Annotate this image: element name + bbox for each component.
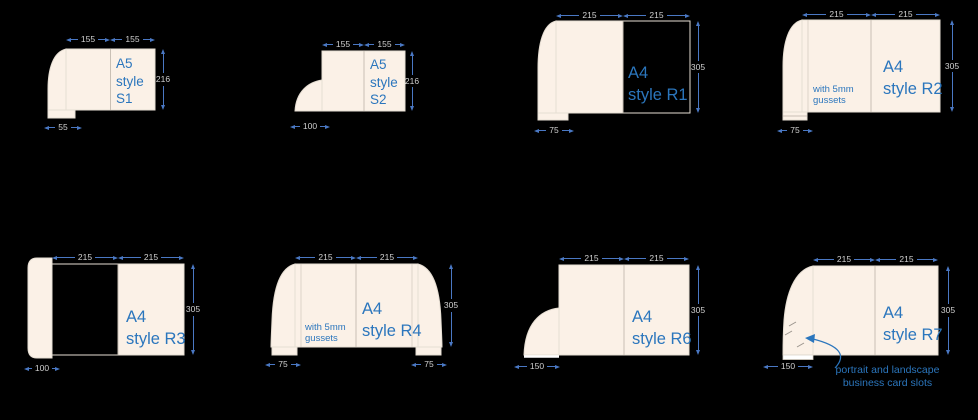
dim-value: 150: [778, 362, 798, 371]
dim-value: 215: [895, 10, 915, 19]
dim-value: 100: [32, 364, 52, 373]
dim-value: 305: [941, 304, 955, 317]
flap-left: [783, 20, 802, 112]
dim-line: [952, 72, 953, 107]
diagram-a5-s2: 155 155 216 100 A5styleS2: [288, 38, 463, 143]
dim-line: [143, 39, 150, 40]
dim-value: 75: [787, 126, 802, 135]
dim-r1-panel2-width: 215: [623, 11, 690, 20]
dim-r2-panel1-width: 215: [802, 10, 871, 19]
folder-label-r1: A4style R1: [628, 62, 688, 107]
dim-value: 305: [444, 299, 458, 312]
dim-line: [115, 39, 122, 40]
arrowhead-right-icon: [808, 365, 813, 369]
arrowhead-down-icon: [946, 350, 950, 355]
dim-line: [163, 54, 164, 73]
dim-r4-height: 305: [441, 264, 461, 347]
pocket-round: [524, 308, 559, 355]
dim-s1-panel2-width: 155: [110, 35, 155, 44]
dim-line: [952, 25, 953, 60]
dim-line: [807, 14, 826, 15]
dim-s2-panel2-width: 155: [364, 40, 405, 49]
dim-r3-spine-width: 100: [24, 364, 60, 373]
dim-value: 155: [333, 40, 353, 49]
diagram-a4-r4: 215 215 305 75 75 with 5mmgussets A4styl…: [263, 250, 468, 385]
dim-value: 216: [156, 73, 170, 86]
dim-value: 75: [546, 126, 561, 135]
dim-value: 305: [691, 304, 705, 317]
dim-line: [412, 87, 413, 106]
arrowhead-down-icon: [449, 342, 453, 347]
dim-value: 215: [896, 255, 916, 264]
dim-value: 215: [75, 253, 95, 262]
dim-line: [876, 14, 895, 15]
gusset-note-r4: with 5mmgussets: [305, 322, 346, 345]
dim-value: 215: [579, 11, 599, 20]
dim-line: [95, 257, 113, 258]
arrowhead-right-icon: [933, 258, 938, 262]
dim-line: [397, 257, 413, 258]
dim-r3-height: 305: [183, 264, 203, 355]
dim-line: [600, 15, 618, 16]
flap-left: [538, 21, 556, 113]
flap-foot-right: [416, 347, 441, 355]
dim-value: 305: [186, 303, 200, 316]
pocket-round: [295, 80, 322, 111]
dim-line: [193, 269, 194, 303]
diagram-a4-r6: 215 215 305 150 A4style R6: [508, 250, 713, 385]
dim-line: [57, 257, 75, 258]
dim-line: [602, 258, 619, 259]
dim-s1-flap-width: 55: [44, 123, 82, 132]
arrowhead-right-icon: [555, 365, 560, 369]
diagram-a4-r2: 215 215 305 75 with 5mmgussets A4style R…: [775, 8, 978, 138]
arrowhead-right-icon: [179, 256, 184, 260]
folder-label-r7: A4style R7: [883, 302, 943, 347]
arrowhead-right-icon: [808, 129, 813, 133]
dim-value: 215: [646, 254, 666, 263]
flap-foot-left: [272, 347, 297, 355]
dim-line: [336, 257, 351, 258]
dim-line: [768, 366, 778, 367]
dim-r3-panel2-width: 215: [118, 253, 184, 262]
flap-left: [783, 266, 813, 355]
dim-line: [798, 366, 808, 367]
dim-line: [193, 316, 194, 350]
dim-line: [698, 26, 699, 61]
arrowhead-right-icon: [150, 38, 155, 42]
dim-r4-panel2-width: 215: [356, 253, 418, 262]
card-slots-caption: portrait and landscapebusiness card slot…: [825, 364, 950, 390]
folder-label-r6: A4style R6: [632, 306, 692, 351]
dim-line: [818, 259, 834, 260]
arrowhead-right-icon: [685, 14, 690, 18]
dim-s2-pocket-width: 100: [290, 122, 330, 131]
flap-bottom-edge: [783, 355, 813, 360]
dim-line: [698, 73, 699, 108]
dim-line: [163, 86, 164, 105]
dim-r6-panel2-width: 215: [624, 254, 689, 263]
dim-s2-panel1-width: 155: [322, 40, 364, 49]
dim-line: [361, 257, 377, 258]
arrowhead-right-icon: [296, 363, 301, 367]
arrowhead-down-icon: [161, 105, 165, 110]
dim-line: [629, 258, 646, 259]
dim-value: 305: [945, 60, 959, 73]
folder-label-s1: A5styleS1: [116, 55, 144, 108]
flap-left: [271, 264, 295, 347]
flap-foot: [48, 110, 75, 118]
diagram-a4-r1: 215 215 305 75 A4style R1: [530, 10, 720, 138]
dim-value: 150: [527, 362, 547, 371]
arrowhead-down-icon: [191, 350, 195, 355]
dim-r4-panel1-width: 215: [295, 253, 356, 262]
arrowhead-down-icon: [696, 350, 700, 355]
flap-foot: [538, 113, 568, 120]
folder-label-r3: A4style R3: [126, 306, 186, 351]
dim-line: [98, 39, 105, 40]
dim-r2-panel2-width: 215: [871, 10, 940, 19]
dim-r4-flap-right-width: 75: [411, 360, 447, 369]
dim-line: [667, 15, 685, 16]
arrowhead-right-icon: [400, 43, 405, 47]
dim-value: 75: [275, 360, 290, 369]
dim-line: [451, 312, 452, 342]
dim-line: [698, 270, 699, 304]
dim-value: 215: [646, 11, 666, 20]
folder-label-r2: A4style R2: [883, 56, 943, 101]
folder-styles-chart: { "title": "presentation folder style di…: [0, 0, 978, 420]
dim-r7-flap-width: 150: [763, 362, 813, 371]
dim-r1-panel1-width: 215: [556, 11, 623, 20]
dim-value: 155: [374, 40, 394, 49]
dim-line: [847, 14, 866, 15]
arrowhead-down-icon: [696, 108, 700, 113]
front-panel: [556, 21, 623, 113]
dim-value: 305: [691, 61, 705, 74]
dim-r3-panel1-width: 215: [52, 253, 118, 262]
arrowhead-right-icon: [77, 126, 82, 130]
dim-line: [412, 56, 413, 75]
dim-r2-height: 305: [942, 20, 962, 112]
dim-value: 215: [581, 254, 601, 263]
spine-flap: [28, 258, 52, 358]
dim-line: [667, 258, 684, 259]
dim-r7-panel1-width: 215: [813, 255, 875, 264]
arrowhead-down-icon: [950, 107, 954, 112]
arrowhead-right-icon: [55, 367, 60, 371]
flap-left: [48, 49, 66, 110]
arrowhead-right-icon: [935, 13, 940, 17]
dim-r6-pocket-width: 150: [514, 362, 560, 371]
arrowhead-right-icon: [684, 257, 689, 261]
dim-line: [539, 130, 546, 131]
dim-line: [123, 257, 141, 258]
dim-value: 215: [315, 253, 335, 262]
dim-value: 215: [834, 255, 854, 264]
dim-r2-flap-width: 75: [777, 126, 813, 135]
diagram-a4-r7: 215 215 305 150 portrait and landscapebu…: [763, 250, 978, 418]
dim-s2-height: 216: [402, 51, 422, 111]
dim-line: [71, 39, 78, 40]
dim-value: 215: [141, 253, 161, 262]
diagram-a5-s1: 155 155 216 55 A5styleS1: [40, 25, 215, 143]
gusset-note-r2: with 5mmgussets: [813, 84, 854, 107]
dim-value: 215: [377, 253, 397, 262]
arrowhead-right-icon: [325, 125, 330, 129]
arrowhead-right-icon: [569, 129, 574, 133]
dim-line: [562, 130, 569, 131]
folder-label-r4: A4style R4: [362, 298, 422, 343]
dim-line: [519, 366, 527, 367]
dim-line: [948, 317, 949, 350]
dim-line: [564, 258, 581, 259]
dim-s1-height: 216: [153, 49, 173, 110]
dim-line: [698, 316, 699, 350]
dim-line: [547, 366, 555, 367]
dim-line: [628, 15, 646, 16]
dim-r1-flap-width: 75: [534, 126, 574, 135]
dim-line: [880, 259, 896, 260]
dim-line: [451, 269, 452, 299]
dim-line: [161, 257, 179, 258]
dim-line: [300, 257, 315, 258]
dim-line: [917, 259, 933, 260]
dim-line: [561, 15, 579, 16]
dim-value: 216: [405, 75, 419, 88]
folder-label-s2: A5styleS2: [370, 56, 398, 109]
dim-line: [916, 14, 935, 15]
dim-value: 155: [122, 35, 142, 44]
dim-value: 55: [55, 123, 70, 132]
dim-s1-panel1-width: 155: [66, 35, 110, 44]
dim-r1-height: 305: [688, 21, 708, 113]
dim-value: 215: [826, 10, 846, 19]
arrowhead-down-icon: [410, 106, 414, 111]
dim-value: 75: [421, 360, 436, 369]
arrowhead-right-icon: [413, 256, 418, 260]
dim-value: 155: [78, 35, 98, 44]
arrowhead-right-icon: [442, 363, 447, 367]
dim-r4-flap-left-width: 75: [265, 360, 301, 369]
dim-line: [854, 259, 870, 260]
dim-value: 100: [300, 122, 320, 131]
dim-r6-panel1-width: 215: [559, 254, 624, 263]
dim-r7-panel2-width: 215: [875, 255, 938, 264]
diagram-a4-r3: 215 215 305 100 A4style R3: [20, 250, 220, 385]
dim-line: [948, 271, 949, 304]
